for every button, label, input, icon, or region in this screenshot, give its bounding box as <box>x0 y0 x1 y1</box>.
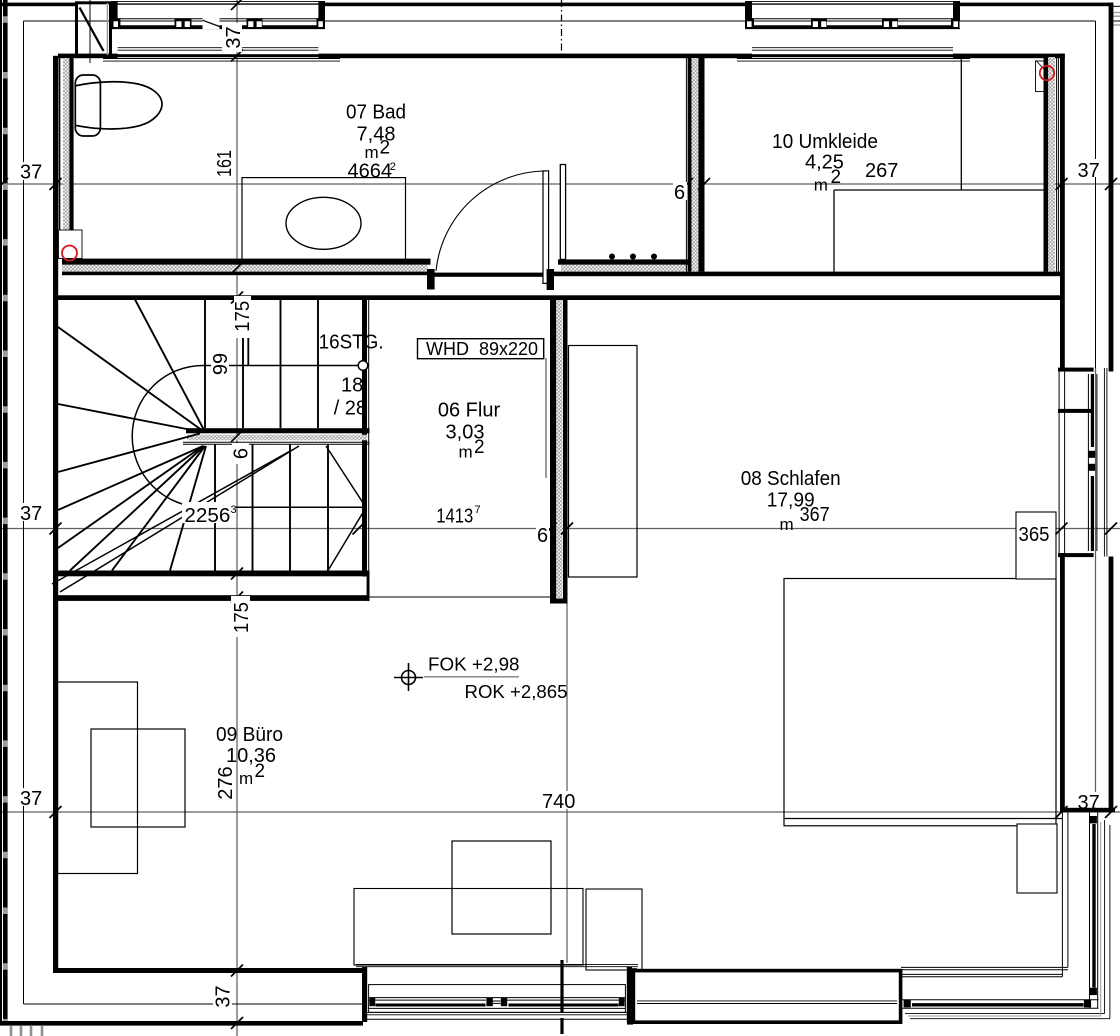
svg-text:m: m <box>365 143 379 162</box>
svg-text:2: 2 <box>831 167 842 188</box>
svg-text:161: 161 <box>214 150 236 177</box>
svg-text:FOK +2,98: FOK +2,98 <box>428 654 520 675</box>
svg-text:WHD 89x220: WHD 89x220 <box>426 339 538 359</box>
svg-text:/ 28: / 28 <box>334 398 367 420</box>
svg-text:276: 276 <box>215 766 237 799</box>
svg-text:16STG.: 16STG. <box>319 332 384 354</box>
svg-text:37: 37 <box>1078 160 1100 182</box>
svg-text:2: 2 <box>380 138 391 159</box>
svg-text:2: 2 <box>390 161 396 173</box>
svg-text:10,36: 10,36 <box>226 745 276 767</box>
svg-text:09 Büro: 09 Büro <box>216 724 283 746</box>
svg-text:3: 3 <box>231 504 237 516</box>
svg-text:37: 37 <box>1078 792 1100 814</box>
svg-text:ROK +2,865: ROK +2,865 <box>465 681 568 702</box>
svg-text:267: 267 <box>865 160 898 182</box>
svg-text:37: 37 <box>223 26 245 48</box>
svg-text:1413: 1413 <box>436 506 473 528</box>
svg-text:6: 6 <box>674 182 685 204</box>
svg-text:2256: 2256 <box>184 505 230 527</box>
svg-text:740: 740 <box>542 791 575 813</box>
svg-text:m: m <box>780 515 794 534</box>
svg-text:37: 37 <box>213 985 235 1007</box>
svg-text:m: m <box>814 176 828 195</box>
svg-text:08 Schlafen: 08 Schlafen <box>741 468 841 490</box>
svg-text:18: 18 <box>341 375 363 397</box>
svg-text:37: 37 <box>20 161 42 183</box>
svg-text:2: 2 <box>255 761 266 782</box>
svg-text:m: m <box>239 769 253 788</box>
svg-text:m: m <box>459 443 473 462</box>
svg-text:7: 7 <box>475 504 481 516</box>
svg-text:175: 175 <box>231 602 253 633</box>
svg-text:6: 6 <box>537 525 548 547</box>
svg-text:365: 365 <box>1019 524 1050 546</box>
svg-text:175: 175 <box>232 301 254 332</box>
svg-text:07 Bad: 07 Bad <box>346 102 406 124</box>
svg-text:99: 99 <box>210 353 232 375</box>
svg-text:4664: 4664 <box>348 160 393 182</box>
svg-text:10 Umkleide: 10 Umkleide <box>772 131 878 153</box>
svg-text:37: 37 <box>20 503 42 525</box>
svg-text:367: 367 <box>800 504 830 526</box>
svg-text:6: 6 <box>231 448 253 459</box>
svg-text:37: 37 <box>20 788 42 810</box>
svg-text:06 Flur: 06 Flur <box>438 400 501 422</box>
svg-text:2: 2 <box>474 437 485 458</box>
